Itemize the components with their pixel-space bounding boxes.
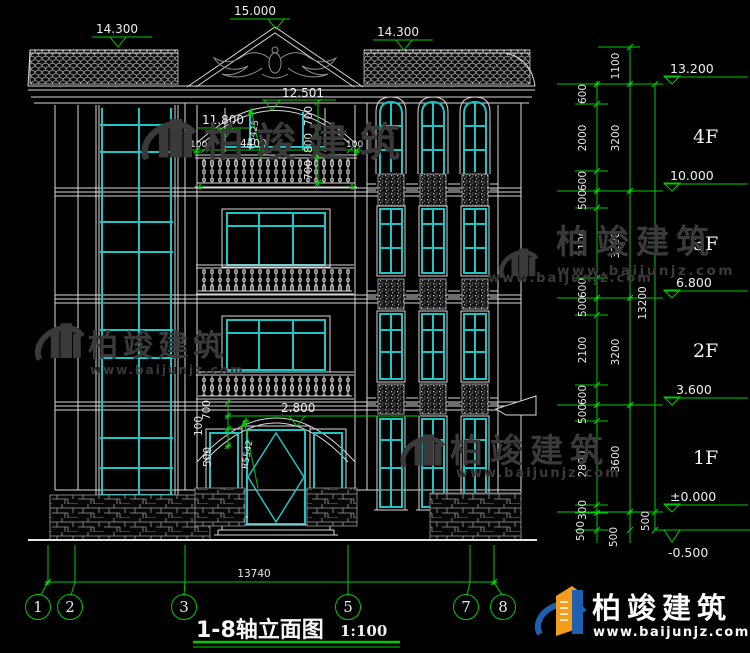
axis-bubble-7: 7	[461, 598, 471, 616]
balcony-railing-3f	[200, 269, 352, 291]
chain-sub-0: 600	[577, 84, 589, 104]
chain-sub-3: 500	[577, 190, 589, 210]
elevation-drawing: 14.300 15.000 14.300 12.501 11.800 2.800…	[0, 0, 750, 653]
chain-sub-2: 600	[577, 171, 589, 191]
axis-bubbles: 1 2 3 5 7 8	[26, 595, 516, 620]
watermark-url: www.baijunjz.com	[456, 466, 621, 481]
level-minus500: -0.500	[668, 545, 708, 560]
axis-bubble-1: 1	[33, 598, 43, 616]
elev-left-eave: 14.300	[96, 22, 138, 36]
floor-label-2f: 2F	[693, 340, 718, 362]
chain-sub-11: 300	[577, 500, 589, 520]
chain-floor-5: 500	[608, 527, 620, 547]
level-0000: ±0.000	[670, 489, 716, 504]
watermark-brand: 柏竣建筑	[556, 222, 716, 261]
balcony-railing-2f	[200, 376, 352, 396]
floor-label-4f: 4F	[693, 126, 718, 148]
chain-floor-0: 1100	[610, 53, 622, 80]
left-curtain-wall	[93, 105, 181, 512]
elev-right-eave: 14.300	[377, 25, 419, 39]
cad-elevation-canvas: 14.300 15.000 14.300 12.501 11.800 2.800…	[0, 0, 750, 653]
elev-ridge: 15.000	[234, 4, 276, 18]
chain-floor-3: 3200	[610, 339, 622, 366]
watermark-brand: 柏竣建筑	[204, 120, 412, 166]
floor-label-1f: 1F	[693, 447, 718, 469]
chain-sub-9: 500	[577, 404, 589, 424]
level-13200: 13.200	[670, 61, 714, 76]
right-dimension-block: 600 2000 600 500 2100 600 500 2100 600 5…	[575, 53, 718, 560]
axis-bubble-8: 8	[498, 598, 508, 616]
chain-sub-1: 2000	[577, 125, 589, 152]
watermark-logo-icon	[38, 324, 82, 360]
elev-entry-arch: 2.800	[281, 401, 315, 415]
chain-total-foot: 500	[640, 511, 652, 531]
chain-floor-1: 3200	[610, 125, 622, 152]
footer-brand-url: www.baijunjz.com	[593, 625, 750, 640]
drawing-title: 1-8轴立面图	[196, 617, 324, 643]
title-block: 1-8轴立面图 1:100	[193, 617, 400, 647]
chain-sub-8: 600	[577, 385, 589, 405]
base	[28, 488, 537, 540]
dim-entry-v-1: 100	[193, 416, 205, 436]
chain-sub-7: 2100	[577, 337, 589, 364]
left-roof-tiles	[30, 50, 178, 84]
axis-bubble-2: 2	[65, 598, 75, 616]
stone-base-left	[50, 495, 210, 540]
watermark-url: www.baijunjz.com	[488, 271, 653, 286]
dim-overall-width: 13740	[237, 568, 270, 580]
gable	[186, 26, 364, 88]
axis-bubble-5: 5	[343, 598, 353, 616]
footer-brand-name: 柏竣建筑	[592, 591, 732, 625]
dim-entry-v-2: 500	[202, 447, 214, 467]
window-3f-center	[222, 209, 330, 267]
chain-sub-12: 500	[575, 521, 587, 541]
elev-arc-top: 12.501	[282, 86, 324, 100]
entrance-steps	[214, 525, 338, 535]
chain-sub-6: 500	[577, 297, 589, 317]
stone-base-right	[430, 493, 521, 540]
axis-bubble-3: 3	[179, 598, 189, 616]
watermark-url: www.baijunjz.com	[90, 363, 245, 377]
drawing-scale: 1:100	[340, 622, 387, 640]
footer-brand: 柏竣建筑 www.baijunjz.com	[538, 586, 750, 640]
chain-total: 13200	[637, 286, 649, 319]
level-3600: 3.600	[676, 382, 712, 397]
level-10000: 10.000	[670, 168, 714, 183]
watermark-brand: 柏竣建筑	[88, 329, 228, 364]
watermark-brand: 柏竣建筑	[450, 431, 610, 470]
center-bay	[195, 107, 357, 536]
right-roof-tiles	[364, 50, 530, 84]
